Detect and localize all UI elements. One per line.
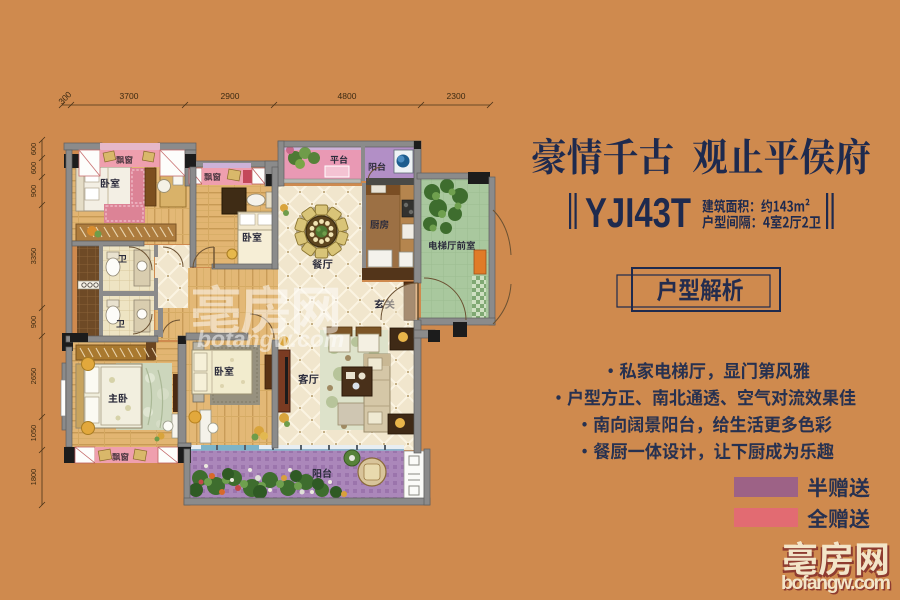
svg-text:bofangw.com: bofangw.com [781,572,891,594]
svg-text:YJI43T: YJI43T [585,189,691,236]
